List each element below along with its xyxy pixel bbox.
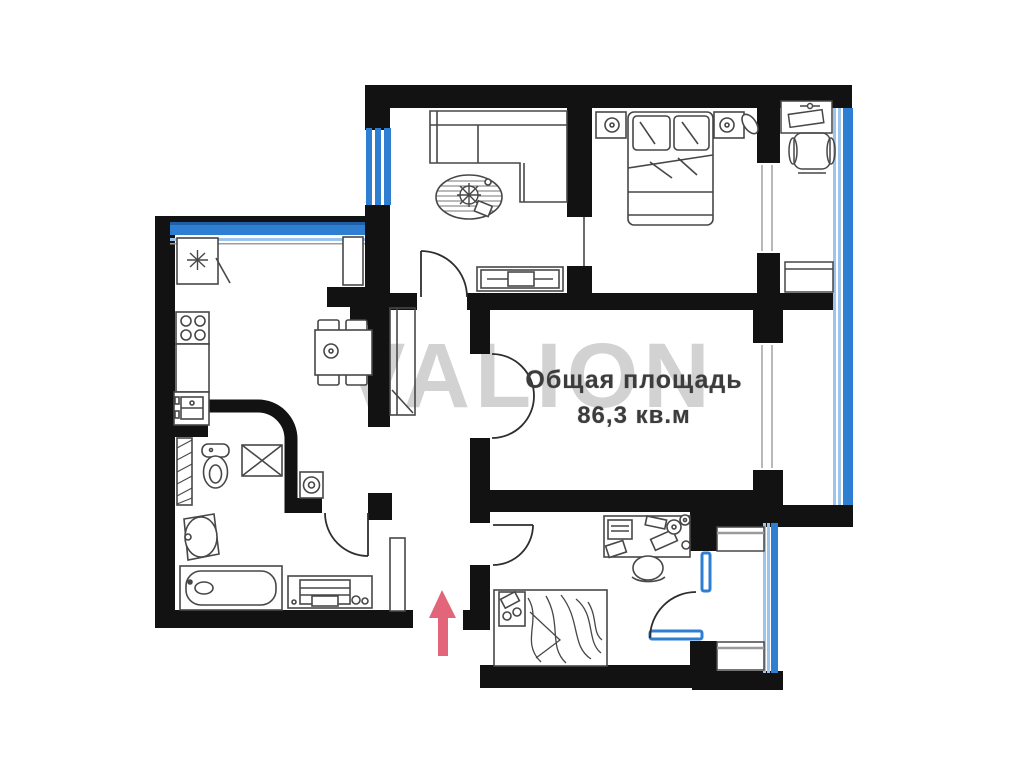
smallbalcony-door-threshold [650, 631, 702, 639]
wall-bigroom-left-a [470, 307, 490, 354]
wall-living-bedroom-lower [567, 266, 592, 296]
wall-bedroom-balcony-lower [757, 253, 780, 295]
small-balcony-cabinet-bottom-icon [717, 642, 764, 670]
wash-basin-icon [184, 514, 219, 560]
vent-hatch [177, 438, 192, 505]
bedroom [596, 112, 761, 225]
bathtub-icon [180, 566, 282, 610]
wall-smallbedroom-right-lower [690, 641, 717, 676]
water-heater-icon [300, 472, 323, 498]
balcony-cabinet-icon [785, 262, 833, 292]
kitchen [174, 237, 372, 425]
wall-smallbedroom-bottom [480, 665, 692, 688]
floor-plan: VALION [0, 0, 1024, 768]
nightstand-right-icon [714, 112, 761, 138]
toilet-icon [202, 444, 229, 488]
wall-smallbedroom-right-upper [690, 505, 717, 551]
desk-computer-icon [604, 515, 690, 557]
rug-plant-icon [436, 175, 502, 219]
balcony-glazing [833, 108, 853, 505]
bathroom-door [325, 513, 368, 556]
kitchen-counter [176, 344, 209, 392]
area-title: Общая площадь [498, 366, 770, 395]
wall-bigroom-left-c [470, 565, 490, 610]
living-room [430, 111, 567, 291]
wall-bigroom-left-b [470, 438, 490, 523]
wardrobe-icon [390, 308, 415, 415]
wall-left-outer [155, 216, 175, 628]
hallway [390, 308, 415, 611]
wall-balcony-divider [710, 505, 853, 527]
wall-bigroom-balcony-stub-top [753, 307, 783, 343]
wall-living-left-lower [365, 205, 390, 307]
wall-living-left-upper [365, 108, 390, 130]
wall-entry-step [463, 610, 490, 630]
wall-kitchen-hall-stub [368, 493, 392, 520]
small-balcony-glazing [763, 523, 778, 673]
balcony-chair-icon [789, 133, 835, 173]
tv-stand-icon [477, 267, 563, 291]
small-bedroom [494, 515, 690, 666]
single-bed-icon [494, 590, 607, 666]
desk-chair-icon [632, 556, 665, 582]
area-value: 86,3 кв.м [498, 402, 770, 430]
entrance-arrow [429, 590, 456, 656]
living-room-door [421, 251, 467, 297]
living-room-window [366, 128, 391, 205]
washing-machine-icon [242, 445, 282, 476]
wall-bedroom-balcony-upper [757, 108, 780, 163]
small-balcony-cabinet-top-icon [717, 527, 764, 551]
stove-icon [176, 312, 209, 344]
fridge-icon [177, 238, 230, 284]
wall-smallbalcony-bottom [692, 671, 783, 690]
wall-top [365, 85, 852, 108]
double-bed-icon [628, 112, 713, 225]
area-label: Общая площадь 86,3 кв.м [498, 366, 770, 430]
smallbedroom-window [702, 553, 710, 591]
wall-left-bottom [155, 610, 413, 628]
bathroom [177, 438, 372, 610]
kitchen-sink-icon [174, 392, 209, 425]
small-bedroom-door [493, 525, 533, 565]
wall-living-bedroom-upper [567, 108, 592, 217]
dining-table-icon [315, 320, 372, 385]
dresser-icon [288, 576, 372, 608]
balcony-desk-icon [781, 101, 832, 133]
nightstand-left-icon [596, 112, 626, 138]
tall-cabinet-icon [343, 237, 363, 285]
mirror-icon [390, 538, 405, 611]
